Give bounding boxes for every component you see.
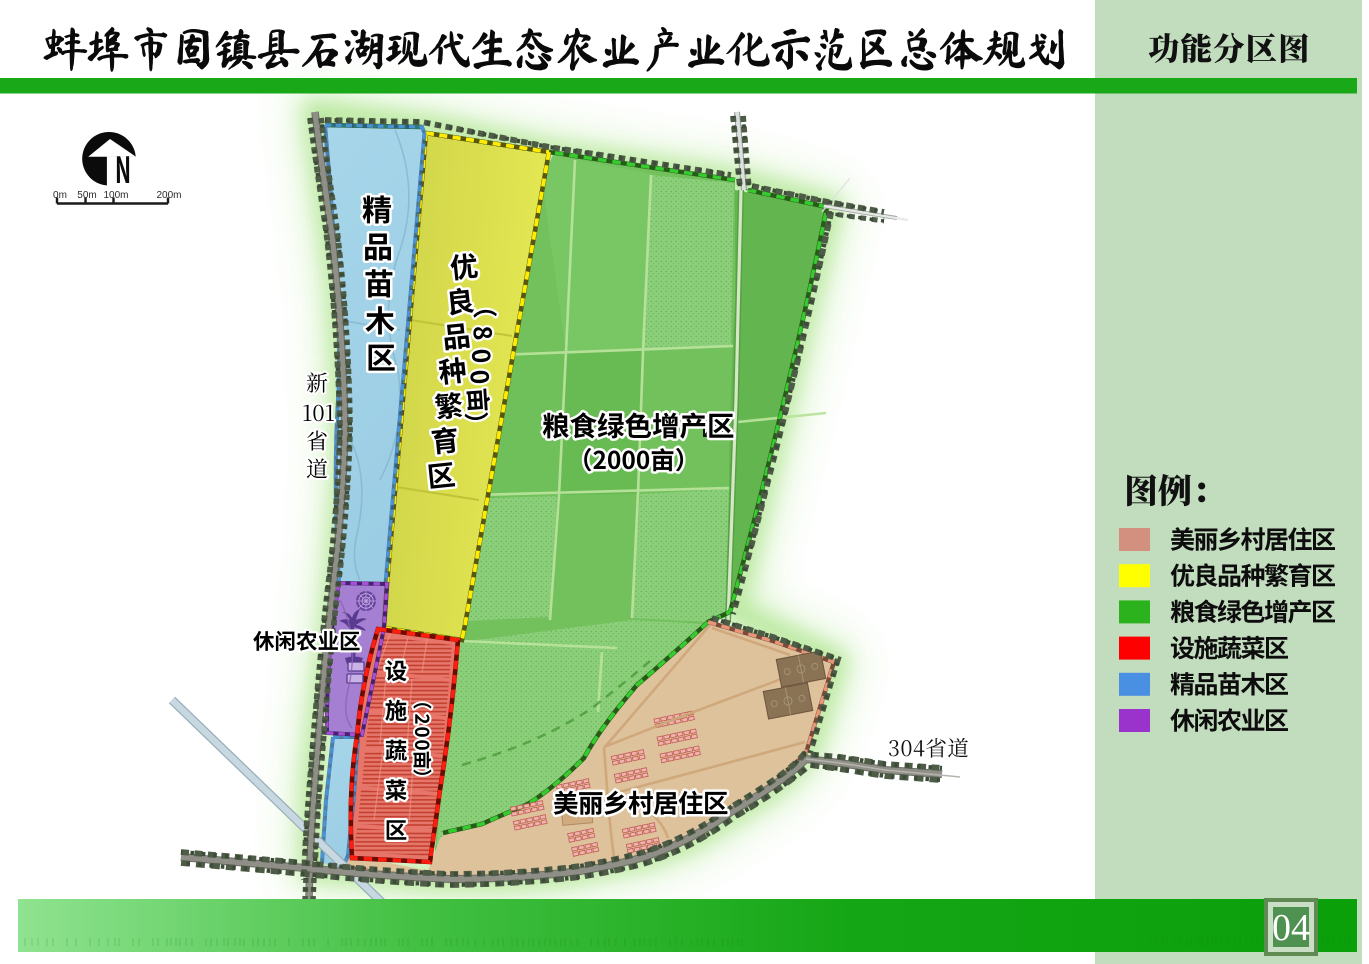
svg-text:100m: 100m <box>103 190 128 201</box>
svg-text:200m: 200m <box>156 190 181 201</box>
svg-text:04: 04 <box>1272 907 1310 949</box>
svg-text:0m: 0m <box>53 190 67 201</box>
svg-text:50m: 50m <box>77 190 96 201</box>
